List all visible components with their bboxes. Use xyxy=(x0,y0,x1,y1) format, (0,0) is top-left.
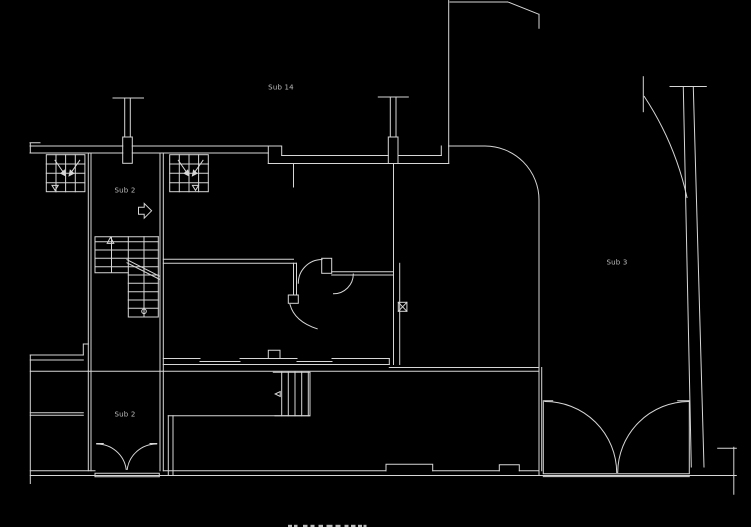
stair-break-line xyxy=(127,260,160,280)
mid-block-bottom-wall xyxy=(30,350,539,371)
label-unit-right: Sub 3 xyxy=(606,259,627,267)
right-section-walls xyxy=(449,0,737,494)
label-lower-room: Sub 2 xyxy=(114,411,135,419)
right-arrow-icon xyxy=(139,203,152,218)
chimney-column-left xyxy=(113,98,144,163)
label-stair-hall: Sub 2 xyxy=(114,187,135,195)
down-arrow-icon xyxy=(192,185,198,190)
door-arc xyxy=(644,97,687,198)
door-arc xyxy=(618,402,689,473)
lower-left-rooms xyxy=(30,355,83,484)
left-arrow-icon xyxy=(275,392,280,397)
top-wall xyxy=(30,143,485,187)
double-entry-door xyxy=(543,401,689,477)
fence-post xyxy=(718,447,737,494)
door-arc xyxy=(334,274,354,294)
door-arc xyxy=(545,401,617,472)
linework-layer xyxy=(30,0,736,494)
lower-room xyxy=(88,371,163,477)
chimney-column-right xyxy=(378,97,408,164)
floorplan-canvas[interactable]: Sub 14 Sub 2 Sub 3 Sub 2 xyxy=(0,0,751,527)
shaft-box-right xyxy=(170,155,209,192)
label-unit-top: Sub 14 xyxy=(268,84,294,92)
door-arc xyxy=(97,444,127,469)
door-arc xyxy=(127,444,157,469)
door-arc xyxy=(290,305,317,329)
up-arrow-icon xyxy=(107,237,114,243)
middle-rooms xyxy=(163,164,407,365)
down-arrow-icon xyxy=(52,185,58,190)
curved-wall xyxy=(485,146,539,200)
main-staircase xyxy=(95,237,160,317)
ramp-lines xyxy=(683,87,704,467)
door-arc xyxy=(298,260,322,284)
upper-right-door xyxy=(643,77,687,198)
bottom-middle-room xyxy=(168,416,310,476)
small-stair xyxy=(273,372,310,415)
shaft-box-left xyxy=(46,155,85,192)
